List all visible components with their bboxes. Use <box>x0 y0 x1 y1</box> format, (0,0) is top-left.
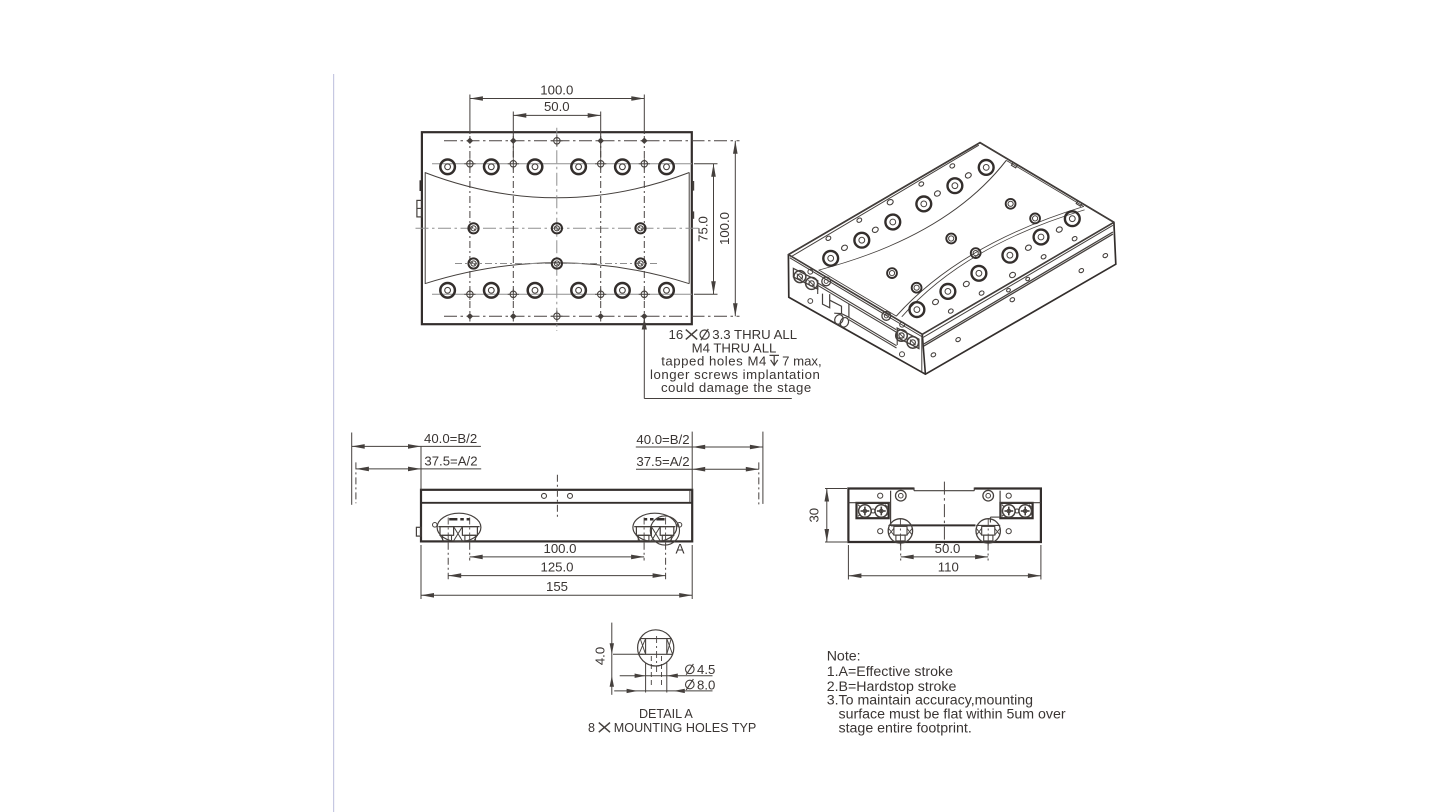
svg-text:37.5=A/2: 37.5=A/2 <box>636 454 689 469</box>
svg-text:30: 30 <box>807 508 822 523</box>
svg-text:1.A=Effective stroke: 1.A=Effective stroke <box>827 664 953 680</box>
svg-text:4.0: 4.0 <box>593 647 608 665</box>
svg-text:100.0: 100.0 <box>543 541 576 556</box>
svg-text:8: 8 <box>588 721 595 735</box>
svg-text:A: A <box>675 542 684 557</box>
svg-text:75.0: 75.0 <box>695 216 710 242</box>
svg-text:16: 16 <box>669 327 684 342</box>
svg-text:155: 155 <box>546 579 568 594</box>
svg-text:stage entire footprint.: stage entire footprint. <box>839 720 972 736</box>
svg-text:50.0: 50.0 <box>935 541 961 556</box>
svg-text:Note:: Note: <box>827 648 861 664</box>
svg-text:125.0: 125.0 <box>540 560 573 575</box>
svg-text:37.5=A/2: 37.5=A/2 <box>424 454 477 469</box>
svg-text:DETAIL A: DETAIL A <box>639 707 693 721</box>
svg-text:100.0: 100.0 <box>717 212 732 245</box>
svg-text:50.0: 50.0 <box>544 99 570 114</box>
svg-text:110: 110 <box>938 560 959 575</box>
svg-text:MOUNTING HOLES TYP: MOUNTING HOLES TYP <box>614 721 757 735</box>
svg-text:8.0: 8.0 <box>697 677 715 692</box>
svg-text:could damage the stage: could damage the stage <box>661 380 812 395</box>
svg-text:40.0=B/2: 40.0=B/2 <box>636 432 689 447</box>
svg-text:4.5: 4.5 <box>697 662 715 677</box>
svg-text:100.0: 100.0 <box>540 82 573 97</box>
svg-text:40.0=B/2: 40.0=B/2 <box>424 431 477 446</box>
